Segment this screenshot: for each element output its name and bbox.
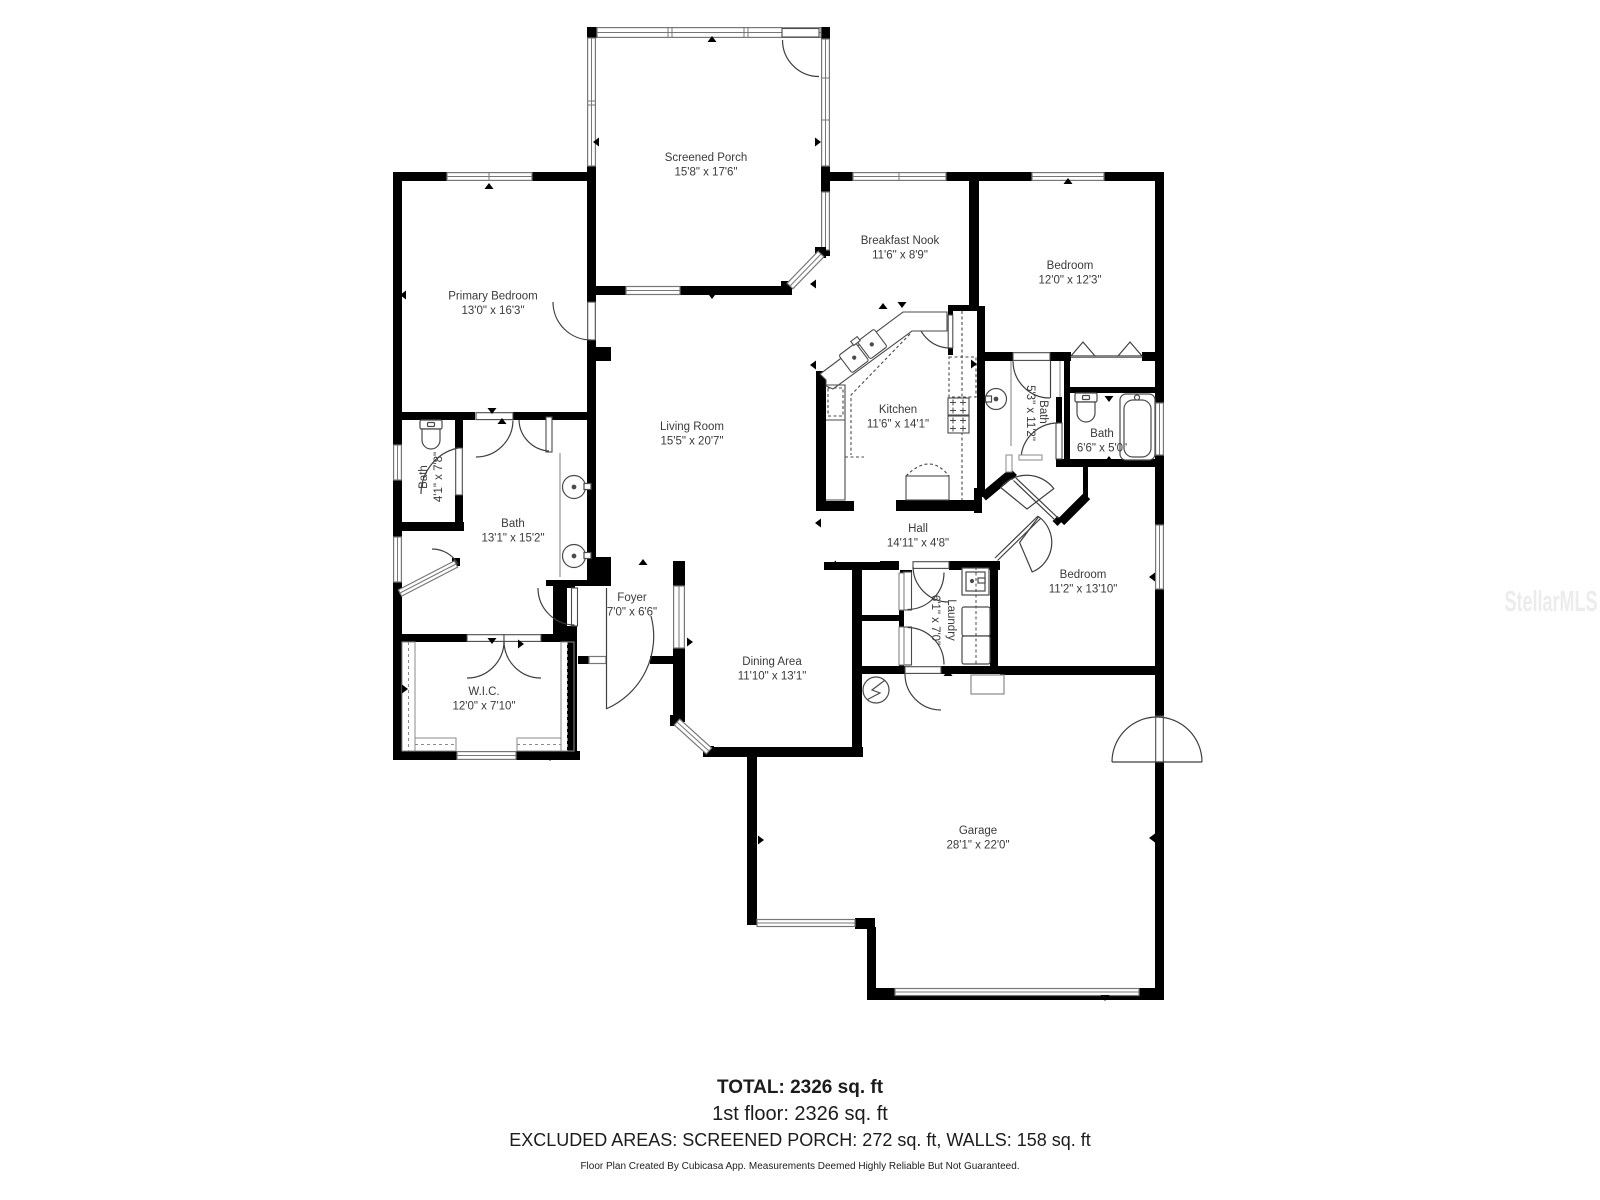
svg-text:EXCLUDED AREAS: SCREENED PORCH: EXCLUDED AREAS: SCREENED PORCH: 272 sq. … [509, 1130, 1091, 1150]
svg-text:Bedroom: Bedroom [1047, 260, 1094, 272]
svg-text:15'8" x 17'6": 15'8" x 17'6" [674, 167, 737, 179]
svg-text:1st floor: 2326 sq. ft: 1st floor: 2326 sq. ft [712, 1103, 888, 1125]
svg-text:Bath: Bath [418, 465, 430, 489]
svg-text:Breakfast Nook: Breakfast Nook [861, 235, 940, 247]
svg-text:Floor Plan Created By Cubicasa: Floor Plan Created By Cubicasa App. Meas… [580, 1161, 1019, 1172]
svg-text:6'1" x 7'0": 6'1" x 7'0" [929, 595, 941, 645]
svg-text:Primary Bedroom: Primary Bedroom [448, 291, 537, 303]
svg-text:Living Room: Living Room [660, 421, 724, 433]
svg-text:Bath: Bath [501, 518, 525, 530]
svg-text:Garage: Garage [959, 825, 997, 837]
svg-text:13'1" x 15'2": 13'1" x 15'2" [481, 533, 544, 545]
svg-text:Foyer: Foyer [617, 592, 647, 604]
svg-text:5'3" x 11'2": 5'3" x 11'2" [1024, 385, 1036, 441]
svg-text:11'2" x 13'10": 11'2" x 13'10" [1049, 584, 1118, 596]
svg-text:12'0" x 7'10": 12'0" x 7'10" [452, 701, 515, 713]
svg-text:7'0" x 6'6": 7'0" x 6'6" [607, 607, 657, 619]
svg-text:Kitchen: Kitchen [879, 404, 917, 416]
svg-text:13'0" x 16'3": 13'0" x 16'3" [461, 305, 524, 317]
svg-text:11'6" x 14'1": 11'6" x 14'1" [867, 419, 929, 431]
svg-text:Hall: Hall [908, 523, 928, 535]
svg-text:Bath: Bath [1037, 400, 1049, 424]
svg-text:12'0" x 12'3": 12'0" x 12'3" [1038, 275, 1101, 287]
svg-text:15'5" x 20'7": 15'5" x 20'7" [660, 436, 723, 448]
svg-text:14'11" x 4'8": 14'11" x 4'8" [887, 538, 949, 550]
svg-text:TOTAL: 2326 sq. ft: TOTAL: 2326 sq. ft [717, 1077, 884, 1098]
svg-text:4'1" x 7'8": 4'1" x 7'8" [433, 452, 445, 502]
svg-text:StellarMLS: StellarMLS [1505, 586, 1598, 618]
svg-text:Dining Area: Dining Area [742, 656, 802, 668]
svg-text:11'10" x 13'1": 11'10" x 13'1" [738, 671, 807, 683]
svg-text:Laundry: Laundry [945, 599, 957, 641]
svg-text:Screened Porch: Screened Porch [665, 152, 747, 164]
svg-text:6'6" x 5'0": 6'6" x 5'0" [1077, 443, 1127, 455]
svg-text:W.I.C.: W.I.C. [468, 686, 499, 698]
svg-text:Bath: Bath [1090, 428, 1114, 440]
svg-text:Bedroom: Bedroom [1060, 569, 1107, 581]
svg-text:11'6" x 8'9": 11'6" x 8'9" [872, 250, 928, 262]
svg-text:28'1" x 22'0": 28'1" x 22'0" [946, 840, 1009, 852]
